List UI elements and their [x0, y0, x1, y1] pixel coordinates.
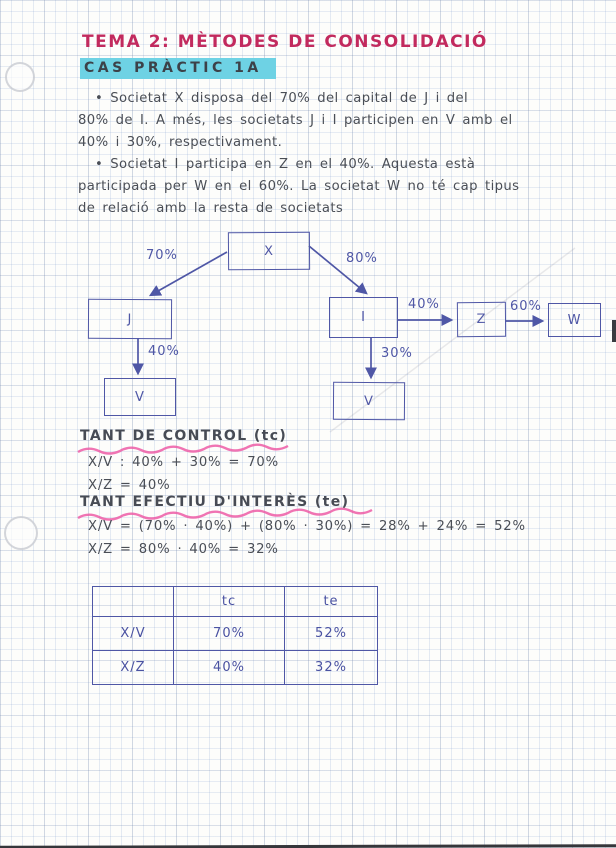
tc-section-heading: TANT DE CONTROL (tc) — [80, 428, 287, 444]
tc-formula-xv: X/V : 40% + 30% = 70% — [88, 455, 279, 470]
bullet-paragraph-1: • Societat X disposa del 70% del capital… — [78, 88, 513, 154]
node-label: V — [135, 390, 145, 405]
node-label: X — [264, 243, 274, 258]
diagram-node-z: Z — [457, 302, 506, 337]
diagram-node-v-left: V — [104, 378, 176, 416]
note-line: participada per W en el 60%. La societat… — [78, 176, 519, 198]
diagram-node-x: X — [228, 232, 310, 271]
diagram-node-v-right: V — [333, 382, 405, 421]
tc-heading-underline — [78, 445, 288, 454]
page-title: TEMA 2: MÈTODES DE CONSOLIDACIÓ — [82, 32, 488, 52]
node-label: V — [364, 393, 374, 408]
edge-label-i-z: 40% — [408, 297, 440, 312]
table-header-row: tc te — [93, 587, 378, 617]
table-header-empty — [93, 587, 174, 617]
hole-punch-top — [5, 62, 35, 92]
edge-label-x-i: 80% — [346, 251, 378, 266]
edge-label-j-v: 40% — [148, 344, 180, 359]
table-row: X/V 70% 52% — [93, 617, 378, 651]
table-cell: X/V — [93, 617, 174, 651]
note-line: 40% i 30%, respectivament. — [78, 132, 513, 154]
te-formula-xz: X/Z = 80% · 40% = 32% — [88, 542, 279, 557]
edge-label-i-v: 30% — [381, 346, 413, 361]
edge-label-z-w: 60% — [510, 299, 542, 314]
note-line: de relació amb la resta de societats — [78, 198, 519, 220]
diagram-node-w: W — [548, 303, 601, 337]
paper-bottom-edge — [0, 844, 616, 848]
te-formula-xv: X/V = (70% · 40%) + (80% · 30%) = 28% + … — [88, 519, 526, 534]
hole-punch-middle — [4, 516, 38, 550]
note-line: • Societat I participa en Z en el 40%. A… — [78, 154, 519, 176]
tc-formula-xz: X/Z = 40% — [88, 478, 170, 493]
node-label: J — [128, 311, 133, 326]
te-section-heading: TANT EFECTIU D'INTERÈS (te) — [80, 494, 349, 510]
diagram-node-j: J — [88, 299, 172, 339]
table-cell: 32% — [285, 651, 378, 685]
bullet-paragraph-2: • Societat I participa en Z en el 40%. A… — [78, 154, 519, 220]
table-row: X/Z 40% 32% — [93, 651, 378, 685]
case-label-highlight: CAS PRÀCTIC 1A — [80, 58, 276, 79]
summary-table: tc te X/V 70% 52% X/Z 40% 32% — [92, 586, 378, 685]
edge-label-x-j: 70% — [146, 248, 178, 263]
scan-edge-mark — [612, 320, 616, 342]
diagram-node-i: I — [329, 297, 398, 338]
table-cell: X/Z — [93, 651, 174, 685]
node-label: W — [568, 313, 582, 328]
te-heading-underline — [78, 509, 372, 520]
table-cell: 52% — [285, 617, 378, 651]
note-line: • Societat X disposa del 70% del capital… — [78, 88, 513, 110]
table-cell: 70% — [174, 617, 285, 651]
node-label: Z — [476, 312, 486, 327]
table-cell: 40% — [174, 651, 285, 685]
node-label: I — [361, 310, 366, 325]
table-header-te: te — [285, 587, 378, 617]
note-line: 80% de I. A més, les societats J i I par… — [78, 110, 513, 132]
table-header-tc: tc — [174, 587, 285, 617]
notebook-page: TEMA 2: MÈTODES DE CONSOLIDACIÓ CAS PRÀC… — [0, 0, 616, 848]
